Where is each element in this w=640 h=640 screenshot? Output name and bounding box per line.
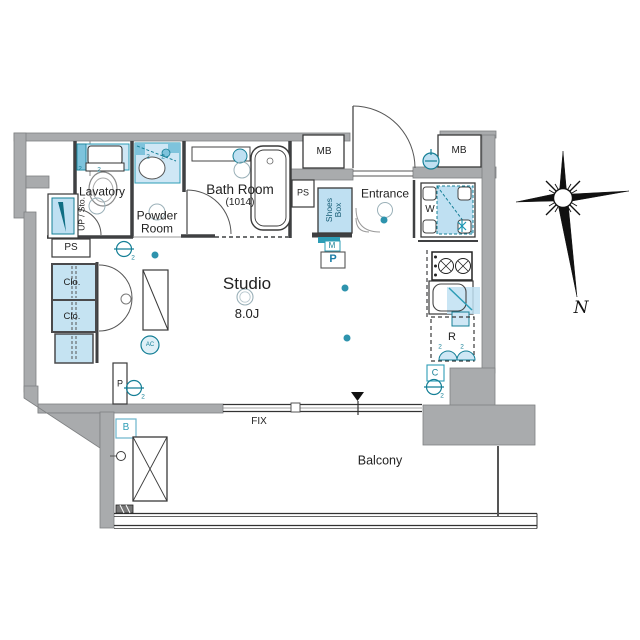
label-fix-window: FIX — [251, 417, 267, 428]
fix-window — [223, 392, 422, 415]
label-closet-upper: Clo. — [64, 278, 81, 288]
label-closet-lower: Clo. — [64, 312, 81, 322]
label-mb-right: MB — [452, 146, 467, 157]
downlight-count: 2 — [78, 166, 82, 173]
room-label-entrance: Entrance — [361, 188, 409, 201]
room-label-bath-room: Bath Room — [206, 183, 274, 197]
label-ps-lower: PS — [64, 243, 77, 254]
room-label-powder-room: Powder Room — [126, 209, 188, 234]
closet-doors — [99, 265, 132, 331]
label-mb-left: MB — [317, 147, 332, 158]
label-meter: M — [329, 242, 336, 250]
label-pillar-balcony: P — [117, 379, 123, 388]
downlight-count: 2 — [97, 167, 101, 174]
downlight-count: 2 — [161, 154, 165, 161]
compass-rose — [516, 151, 629, 297]
room-label-studio-size: 8.0J — [235, 307, 260, 321]
kitchen-sink — [429, 281, 480, 326]
downlight-count: 2 — [141, 394, 145, 401]
room-label-up-storage: UP / Sto. — [78, 197, 87, 231]
drain-hatch — [116, 505, 133, 513]
floorplan-graphics — [0, 0, 640, 640]
downlight-count: 2 — [460, 344, 464, 351]
balcony-railing — [114, 514, 537, 529]
room-label-studio: Studio — [223, 275, 271, 293]
meter-box — [48, 194, 78, 238]
entrance-door — [353, 106, 415, 176]
downlight-count: 2 — [440, 393, 444, 400]
room-label-balcony: Balcony — [358, 454, 402, 467]
studio-counter — [143, 270, 168, 330]
downlight-count: 2 — [146, 154, 150, 161]
entrance-light-symbol — [423, 149, 439, 169]
label-counter: C — [432, 368, 439, 377]
floorplan-canvas: Lavatory UP / Sto. Powder Room Bath Room… — [0, 0, 640, 640]
label-washing-machine: W — [425, 205, 434, 216]
label-balcony-hatch: B — [123, 423, 130, 434]
label-compass-north: N — [574, 300, 589, 318]
label-refrigerator: R — [448, 332, 456, 344]
equipment-hatch — [133, 437, 167, 501]
kitchen-stove — [432, 252, 472, 280]
room-label-bath-size: (1014) — [226, 198, 255, 209]
label-pillar-hall: P — [329, 254, 336, 266]
downlight-count: 2 — [131, 255, 135, 262]
label-ps-upper: PS — [297, 188, 309, 197]
downlight-count: 2 — [438, 344, 442, 351]
room-label-shoes-box: Shoes Box — [325, 193, 343, 227]
label-air-conditioner: AC — [146, 342, 154, 348]
closet-extra — [55, 334, 93, 363]
